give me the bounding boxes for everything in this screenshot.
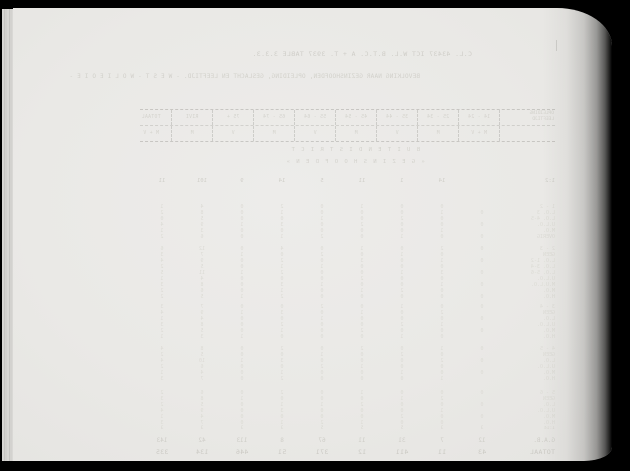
cell-value: 1: [382, 234, 422, 240]
cell-value: 0: [342, 334, 382, 340]
cell-value: 7: [182, 376, 222, 382]
cell-value: 134: [182, 448, 222, 456]
cell-value: 101: [182, 178, 222, 184]
cell-value: [462, 178, 502, 184]
cell-value: 7: [422, 437, 462, 444]
cell-value: 1: [382, 178, 422, 184]
header-sex-cell: V: [213, 126, 254, 141]
header-sex-cell: M: [418, 126, 459, 141]
cell-value: 0: [422, 234, 462, 240]
cell-value: 0: [382, 294, 422, 300]
cell-value: 5: [182, 294, 222, 300]
cell-value: 11: [142, 178, 182, 184]
header-cell: RIVI: [172, 110, 213, 125]
cell-value: 1: [142, 334, 182, 340]
cell-value: 11: [342, 437, 382, 444]
cell-value: 2: [302, 234, 342, 240]
cell-value: 0: [342, 376, 382, 382]
cell-value: 1: [262, 234, 302, 240]
cell-value: 5: [382, 426, 422, 431]
cell-value: 8: [262, 437, 302, 444]
header-cell: 55 - 64: [295, 110, 336, 125]
cell-value: 0: [422, 294, 462, 300]
cell-value: 11: [342, 178, 382, 184]
cell-value: 0: [382, 376, 422, 382]
cell-value: 2: [142, 294, 182, 300]
cell-value: 3: [182, 426, 222, 431]
cell-value: 0: [302, 334, 342, 340]
cell-value: 3: [222, 426, 262, 431]
cell-value: 0: [342, 294, 382, 300]
cell-value: 6: [182, 234, 222, 240]
cell-value: 371: [302, 448, 342, 456]
cell-value: 3: [182, 334, 222, 340]
cell-value: 2: [142, 234, 182, 240]
book-spine-shadow: [542, 8, 612, 461]
group-subrow: H.O.01000131: [140, 334, 555, 340]
cell-value: 51: [262, 448, 302, 456]
group-subrow: H.O.000002152: [140, 294, 555, 300]
cell-value: 12: [342, 448, 382, 456]
cell-value: 1: [222, 294, 262, 300]
bleed-title-line: C.L. 43437 ICT W.L. B.T.C. A + T. 3937 T…: [277, 50, 472, 58]
header-row-columns: 14 - 2425 - 3435 - 4445 - 5455 - 6465 - …: [140, 110, 555, 125]
header-sex-cell: M: [254, 126, 295, 141]
bleed-subject-line: BEVOLKING NAAR GEZINSHOOFDEN, OPLEIDING,…: [42, 73, 420, 80]
cell-value: 5: [342, 426, 382, 431]
cell-value: 14: [422, 178, 462, 184]
cell-value: 1: [222, 334, 262, 340]
header-cell: 35 - 44: [377, 110, 418, 125]
header-row-sex: M + VMVMVMVMM + V: [140, 126, 555, 141]
cell-value: 0: [462, 234, 502, 240]
cell-value: 67: [302, 437, 342, 444]
cell-value: 0: [462, 294, 502, 300]
cell-value: 14: [262, 178, 302, 184]
cell-value: [462, 334, 502, 340]
cell-value: 2: [262, 294, 302, 300]
header-cell: 25 - 34: [418, 110, 459, 125]
cell-value: 0: [222, 376, 262, 382]
cell-value: 3: [142, 426, 182, 431]
header-cell: 45 - 54: [336, 110, 377, 125]
cell-value: 0: [422, 334, 462, 340]
cell-value: 3: [422, 426, 462, 431]
cell-value: 11: [422, 448, 462, 456]
cell-value: 335: [142, 448, 182, 456]
cell-value: 43: [462, 448, 502, 456]
footer-minor-row: 1:14335553333: [140, 426, 555, 431]
header-sex-cell: M: [336, 126, 377, 141]
cell-value: 0: [302, 294, 342, 300]
scanned-page: C.L. 43437 ICT W.L. B.T.C. A + T. 3937 T…: [13, 8, 612, 461]
header-sex-cell: M + V: [459, 126, 500, 141]
cell-value: 143: [142, 437, 182, 444]
cell-value: 3: [462, 426, 502, 431]
group-subrow: OVERIG001021062: [140, 234, 555, 240]
cell-value: 0: [342, 234, 382, 240]
cell-value: 3: [262, 426, 302, 431]
header-cell: 65 - 74: [254, 110, 295, 125]
header-sex-cell: M + V: [131, 126, 172, 141]
cell-value: 1: [382, 334, 422, 340]
header-sex-cell: V: [377, 126, 418, 141]
header-cell: 14 - 24: [459, 110, 500, 125]
group-subrow: H.O.10002073: [140, 376, 555, 382]
cell-value: 0: [222, 234, 262, 240]
cell-value: 113: [222, 437, 262, 444]
bleed-through-layer: C.L. 43437 ICT W.L. B.T.C. A + T. 3937 T…: [13, 8, 612, 461]
cell-value: [462, 376, 502, 382]
header-sex-cell: M: [172, 126, 213, 141]
bleed-center-line-1: B U I T E N D I S T R I C T: [210, 147, 500, 153]
header-sex-cell: V: [295, 126, 336, 141]
footer-total-row: TOTAAL43114111237151446134335: [140, 448, 555, 456]
cell-value: 31: [382, 437, 422, 444]
cell-value: 12: [462, 437, 502, 444]
header-cell: TOTAAL: [131, 110, 172, 125]
cell-value: 5: [302, 426, 342, 431]
cell-value: 9: [222, 178, 262, 184]
table-header-box: 14 - 2425 - 3435 - 4445 - 5455 - 6465 - …: [140, 109, 555, 142]
summary-row: 1:214111514910111: [140, 178, 555, 184]
cell-value: 5: [302, 178, 342, 184]
cell-value: 2: [262, 376, 302, 382]
bleed-center-line-2: « G E Z I N S H O O F D E N »: [210, 159, 500, 165]
cell-value: 42: [182, 437, 222, 444]
cell-value: 446: [222, 448, 262, 456]
footer-subtotal-row: G.A.B.127311167811342143: [140, 437, 555, 444]
cell-value: 0: [262, 334, 302, 340]
cell-value: 411: [382, 448, 422, 456]
scanned-book-photo: { "colors": { "paper": "#eae9e6", "scann…: [0, 0, 630, 471]
stacked-page-edges: [2, 9, 13, 461]
cell-value: 3: [142, 376, 182, 382]
header-cell: 75 +: [213, 110, 254, 125]
cell-value: 1: [422, 376, 462, 382]
cell-value: 0: [302, 376, 342, 382]
